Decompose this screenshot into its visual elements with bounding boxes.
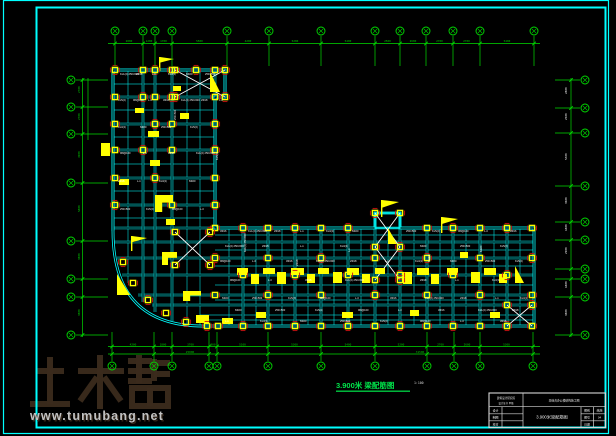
dim-text: 3800 [564,309,568,316]
beam-label: 250×500 [485,259,496,263]
beam-label: KL3(4) [118,125,126,129]
beam-label: KL3(4) [427,254,431,262]
beam-label: KL5(2) [380,319,388,323]
rebar-annotation [256,312,266,318]
beam-label: KL1(2) 250×600 [316,259,335,263]
beam-label: KL3(4) [159,179,167,183]
rebar-annotation [490,312,500,318]
beam-label: 250×500 [205,72,216,76]
dim-text: 2700 [77,86,81,93]
rebar-annotation [173,86,181,91]
dim-text: 5100 [239,342,246,346]
watermark-url-group: www.tumubang.net www.tumubang.net [29,409,165,424]
dim-total-text: 25800 [186,350,195,354]
dim-text: 5200 [292,39,299,43]
rebar-annotation [460,252,468,258]
dim-text: 4900 [77,151,81,158]
dim-text: 3600 [564,197,568,204]
beam-label: Φ8@100 [133,98,144,102]
beam-label: 6Φ20 [300,319,307,323]
dim-text: 800 [210,342,215,346]
beam-label: KL1(2) 250×600 [196,151,215,155]
beam-label: L-3 [355,296,359,300]
beam-label: KL1(2) 250×600 [243,233,247,252]
cad-drawing-canvas[interactable]: KL1(2) 250×6002Φ18L-1KL3(4)6Φ20250×500KL… [0,0,616,436]
dim-text: 1800 [564,224,568,231]
dim-text: 2700 [463,39,470,43]
beam-label: 250×500 [252,296,263,300]
beam-label: L-3 [200,207,204,211]
dim-text: 1700 [160,39,167,43]
rebar-annotation [135,108,144,113]
beam-label: 2Φ18 [512,308,519,312]
rebar-annotation [150,160,160,166]
dim-text: 5200 [398,342,405,346]
rebar-annotation [251,274,259,284]
beam-label: L-1 [300,229,304,233]
rebar-annotation [471,272,480,283]
beam-label: L-1 [300,244,304,248]
dim-text: 5300 [503,342,510,346]
beam-label: 2Φ18 [420,278,427,282]
rebar-annotation [417,268,429,275]
tb-right-value: 结施 [597,408,603,413]
beam-label: Φ8@100 [120,151,131,155]
beam-label: Φ8@100 [358,308,369,312]
tb-right-label: 日期 [584,422,590,427]
beam-label: KL5(2) [190,125,198,129]
rebar-annotation [499,274,507,283]
beam-label: 250×500 [340,319,351,323]
annotation-flag-pole [441,217,442,233]
beam-label: KL1(2) 250×600 [345,278,364,282]
dim-text: 2700 [436,39,443,43]
beam-label: 2Φ18 [136,72,143,76]
beam-label: 3Φ16 [286,259,293,263]
beam-label: 6Φ20 [235,308,242,312]
dim-text: 4200 [130,342,137,346]
beam-label: KL5(2) [432,229,440,233]
beam-label: L-1 [347,248,351,252]
beam-label: Φ8@100 [458,229,469,233]
beam-label: KL1(2) 250×600 [248,229,267,233]
dim-text: 3800 [77,253,81,260]
annotation-l [183,291,190,301]
dim-total-text: 31500 [416,350,425,354]
drawing-title: 3.900米 梁配筋图 [336,380,395,390]
tb-right-label: 图号 [584,415,590,420]
beam-label: L-1 [455,278,459,282]
tb-project-name: 某综合办公楼结构施工图 [549,399,580,403]
beam-label: KL3(4) [340,244,348,248]
beam-label: KL3(4) [326,229,334,233]
beam-label: 250×500 [161,125,172,129]
beam-label: KL5(2) [288,296,296,300]
beam-label: Φ8@100 [220,259,231,263]
beam-label: 6Φ20 [420,244,427,248]
rebar-annotation [166,219,175,225]
beam-label: KL3(4) [415,259,423,263]
beam-label: 6Φ20 [450,259,457,263]
beam-label: 6Φ20 [186,72,193,76]
dim-text: 2600 [464,342,471,346]
beam-label: 250×500 [406,229,417,233]
beam-label: 3Φ16 [163,98,170,102]
beam-label: L-1 [137,179,141,183]
beam-label: 250×500 [275,308,286,312]
beam-label: KL1(2) 250×600 [225,244,244,248]
beam-label: 6Φ20 [222,296,229,300]
beam-label: 3Φ16 [510,229,517,233]
beam-label: L-3 [460,319,464,323]
beam-label: L-3 [484,229,488,233]
beam-label: KL3(4) [520,296,528,300]
dim-text: 2700 [77,113,81,120]
beam-label: 2Φ18 [201,98,208,102]
tb-row-label: 校对 [493,422,499,427]
beam-label: KL5(2) [118,98,126,102]
beam-label: L-1 [225,319,229,323]
beam-label: KL1(2) 250×600 [425,296,444,300]
beam-label: 2Φ18 [118,179,125,183]
beam-label: 6Φ20 [140,125,147,129]
beam-label: KL1(2) 250×600 [181,98,200,102]
dim-text: 5300 [291,342,298,346]
beam-label: KL1(2) 250×600 [478,308,497,312]
rebar-annotation [431,274,439,284]
dim-text: 5400 [345,39,352,43]
dim-text: 5500 [196,39,203,43]
dim-text: 2600 [410,39,417,43]
beam-label: L-1 [385,259,389,263]
dim-text: 5400 [345,342,352,346]
beam-label: 3Φ16 [500,319,507,323]
tb-right-label: 图别 [584,408,590,413]
annotation-l [162,252,168,265]
rebar-annotation [375,268,385,274]
beam-label: L-3 [148,98,152,102]
rebar-annotation [277,272,286,284]
title-underline [336,391,410,392]
dim-text: 2800 [564,87,568,94]
beam-label: 2Φ18 [274,229,281,233]
beam-label: KL5(2) [515,259,523,263]
beam-label: Φ8@100 [172,207,183,211]
beam-label: 250×500 [460,244,471,248]
watermark-brand [30,355,170,409]
dim-text: 4200 [245,39,252,43]
beam-label: L-1 [219,98,223,102]
beam-label: KL5(2) [146,207,154,211]
beam-label: KL3(4) [260,319,268,323]
tb-row-label: 制图 [493,415,499,420]
rebar-annotation [148,131,159,137]
tb-row-label: 设计 [493,408,499,413]
beam-label: KL5(2) [215,152,219,160]
dim-text: 2500 [564,113,568,120]
beam-label: KL3(4) [168,72,176,76]
beam-label: 3Φ16 [390,296,397,300]
dim-text: 2900 [564,247,568,254]
beam-label: KL3(4) [492,278,500,282]
beam-label: 6Φ20 [479,245,483,252]
dim-text: 2700 [437,342,444,346]
rebar-annotation [180,113,189,119]
beam-label: Φ8@100 [320,296,331,300]
dim-text: 2500 [384,39,391,43]
beam-label: 6Φ20 [189,179,196,183]
beam-label: L-3 [398,308,402,312]
beam-label: 250×500 [173,109,177,120]
dim-text: 5800 [77,205,81,212]
tb-company-line1: 建筑设计研究院 [497,396,516,400]
beam-label: L-3 [143,151,147,155]
rebar-annotation [410,310,419,316]
rebar-annotation [484,268,496,275]
beam-label: 3Φ16 [438,308,445,312]
dim-text: 1800 [564,281,568,288]
beam-label: KL5(2) [315,308,323,312]
rebar-annotation [318,268,329,274]
beam-label: 3Φ16 [168,151,175,155]
rebar-annotation [342,312,353,318]
beam-label: 6Φ20 [352,229,359,233]
rebar-annotation [263,268,275,274]
dim-text: 1200 [146,39,153,43]
tb-right-value: 04 [598,416,602,420]
dim-text: 3700 [187,342,194,346]
beam-label: L-3 [268,278,272,282]
beam-label: 2Φ18 [262,244,269,248]
drawing-scale: 1:100 [414,381,424,385]
dim-text: 2800 [126,39,133,43]
beam-label: 250×500 [120,207,131,211]
beam-label: Φ8@100 [230,278,241,282]
tb-drawing-name: 3.900米梁配筋图 [536,414,567,421]
beam-label: L-1 [152,72,156,76]
watermark-url: www.tumubang.net [29,409,164,423]
beam-label: Φ8@100 [420,319,431,323]
beam-label: 2Φ18 [460,296,467,300]
annotation-flag-pole [381,200,382,217]
rebar-annotation [333,272,342,283]
rebar-annotation [101,143,110,156]
dim-text: 5400 [504,39,511,43]
beam-label: L-3 [252,259,256,263]
tb-company-line2: 设计证书 甲级 [498,401,514,405]
annotation-l [155,195,162,212]
beam-label: 3Φ16 [305,278,312,282]
dim-text: 1800 [160,342,167,346]
beam-label: 2Φ18 [295,259,299,266]
annotation-flag-pole [131,236,132,251]
dim-text: 3800 [77,309,81,316]
dim-text: 5300 [564,153,568,160]
beam-label: 2Φ18 [350,259,357,263]
beam-label: 3Φ16 [220,229,227,233]
beam-label: L-1 [495,296,499,300]
beam-label: KL5(2) [500,244,508,248]
